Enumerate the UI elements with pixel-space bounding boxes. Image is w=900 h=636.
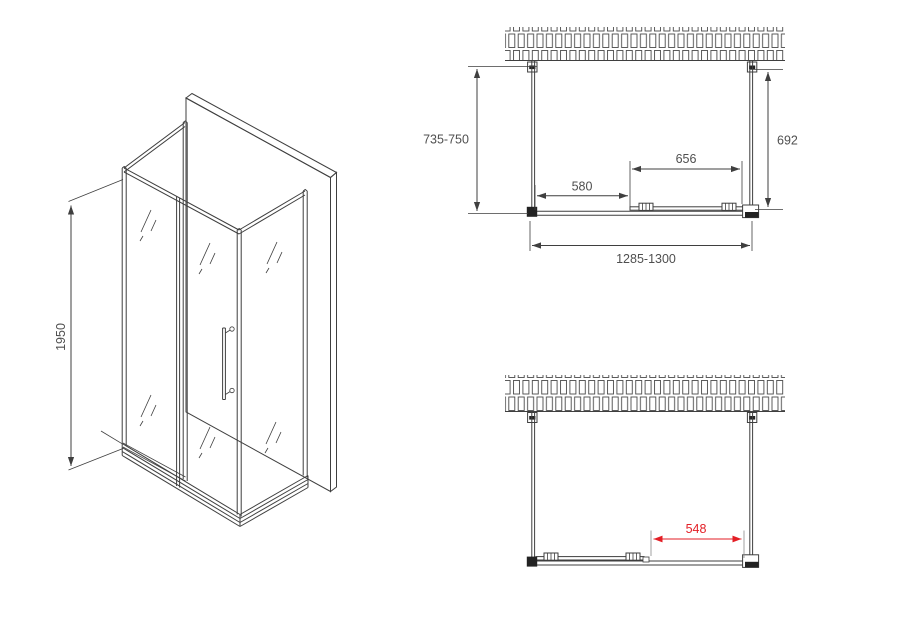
iso-door-divider — [177, 197, 180, 488]
dim-fixed-panel: 580 — [535, 180, 628, 211]
rail-end-cap-left — [527, 557, 537, 567]
wall-hatch-top — [505, 27, 785, 61]
dim-fixed-panel-label: 580 — [572, 180, 593, 194]
rail-end-cap-left — [527, 207, 537, 217]
side-glass-left — [532, 61, 535, 212]
dim-door-width-label: 656 — [676, 152, 697, 166]
door-roller — [639, 203, 653, 210]
iso-back-wall — [186, 94, 337, 492]
dim-total-width: 1285-1300 — [530, 221, 752, 266]
side-glass-right — [750, 412, 753, 562]
iso-view: 1950 — [54, 94, 337, 527]
front-rail-open — [527, 553, 759, 567]
dim-inner-depth: 692 — [750, 70, 798, 210]
dim-height-label: 1950 — [54, 323, 68, 351]
plan-view-open: 548 — [505, 375, 785, 567]
door-roller — [722, 203, 736, 210]
dim-door-width: 656 — [630, 152, 742, 210]
corner-bracket-right — [743, 205, 759, 218]
side-glass-left — [532, 412, 535, 562]
shower-enclosure-drawing: 1950 — [0, 0, 900, 636]
door-stopper — [643, 557, 649, 562]
iso-glass-marks — [140, 210, 282, 458]
dim-total-width-label: 1285-1300 — [616, 252, 676, 266]
iso-corner-posts — [122, 121, 307, 517]
dim-opening-width-label: 548 — [686, 522, 707, 536]
side-glass-right — [750, 61, 753, 212]
iso-door-handle — [223, 327, 235, 400]
front-rail-closed — [527, 203, 759, 217]
technical-drawing-page: 1950 — [0, 0, 900, 636]
iso-top-rails — [124, 123, 305, 235]
plan-view-closed: 735-750 692 656 580 1285-1300 — [423, 27, 798, 266]
door-roller — [544, 553, 558, 560]
iso-height-dimension: 1950 — [54, 180, 123, 471]
iso-base-rails — [101, 431, 308, 527]
dim-depth-label: 735-750 — [423, 133, 469, 147]
dim-depth: 735-750 — [423, 67, 537, 214]
corner-bracket-right — [743, 555, 759, 568]
wall-hatch-bottom — [505, 375, 785, 412]
dim-opening-width: 548 — [651, 522, 744, 558]
door-roller — [626, 553, 640, 560]
dim-inner-depth-label: 692 — [777, 134, 798, 148]
